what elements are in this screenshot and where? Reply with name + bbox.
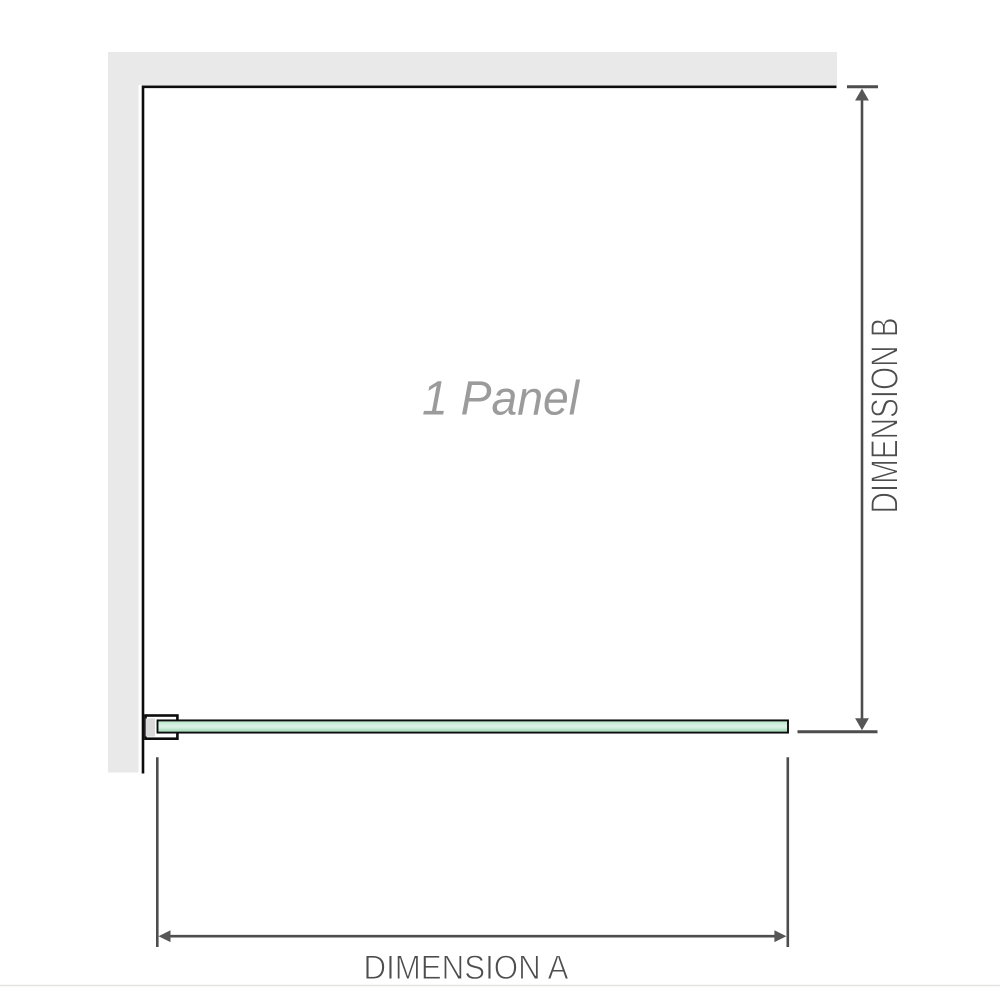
svg-text:DIMENSION A: DIMENSION A (364, 949, 569, 987)
svg-text:1 Panel: 1 Panel (422, 372, 580, 425)
svg-text:DIMENSION B: DIMENSION B (865, 318, 907, 514)
